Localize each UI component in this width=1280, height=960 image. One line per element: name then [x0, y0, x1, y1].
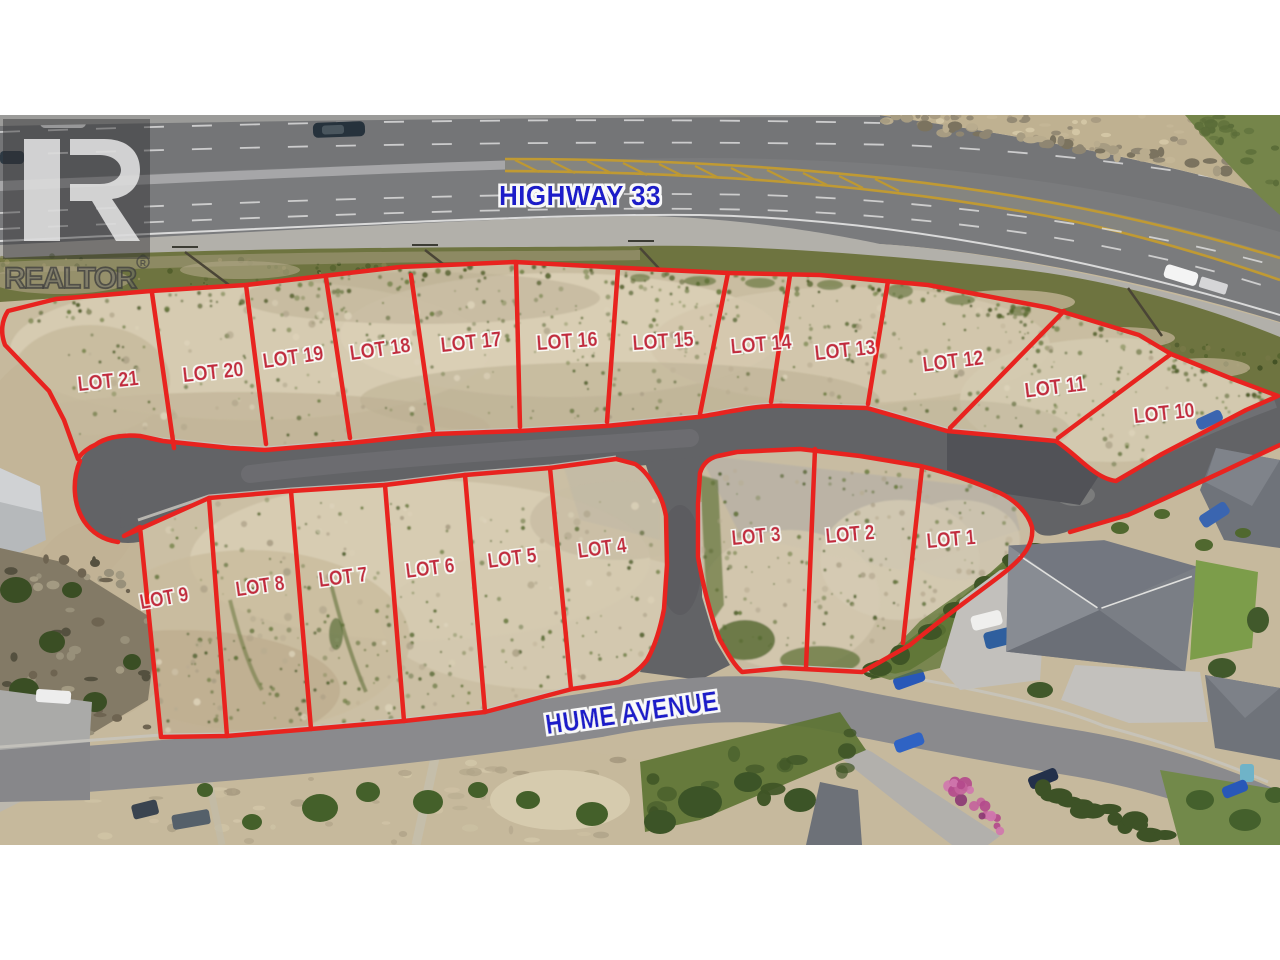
svg-text:LOT 3: LOT 3	[731, 523, 782, 550]
svg-text:HIGHWAY 33: HIGHWAY 33	[499, 180, 661, 211]
svg-text:REALTOR: REALTOR	[4, 262, 138, 295]
svg-text:LOT 15: LOT 15	[632, 328, 695, 355]
svg-text:LOT 1: LOT 1	[926, 526, 977, 553]
svg-text:LOT 16: LOT 16	[536, 328, 598, 355]
svg-text:R: R	[140, 258, 146, 268]
svg-text:LOT 2: LOT 2	[825, 521, 876, 548]
